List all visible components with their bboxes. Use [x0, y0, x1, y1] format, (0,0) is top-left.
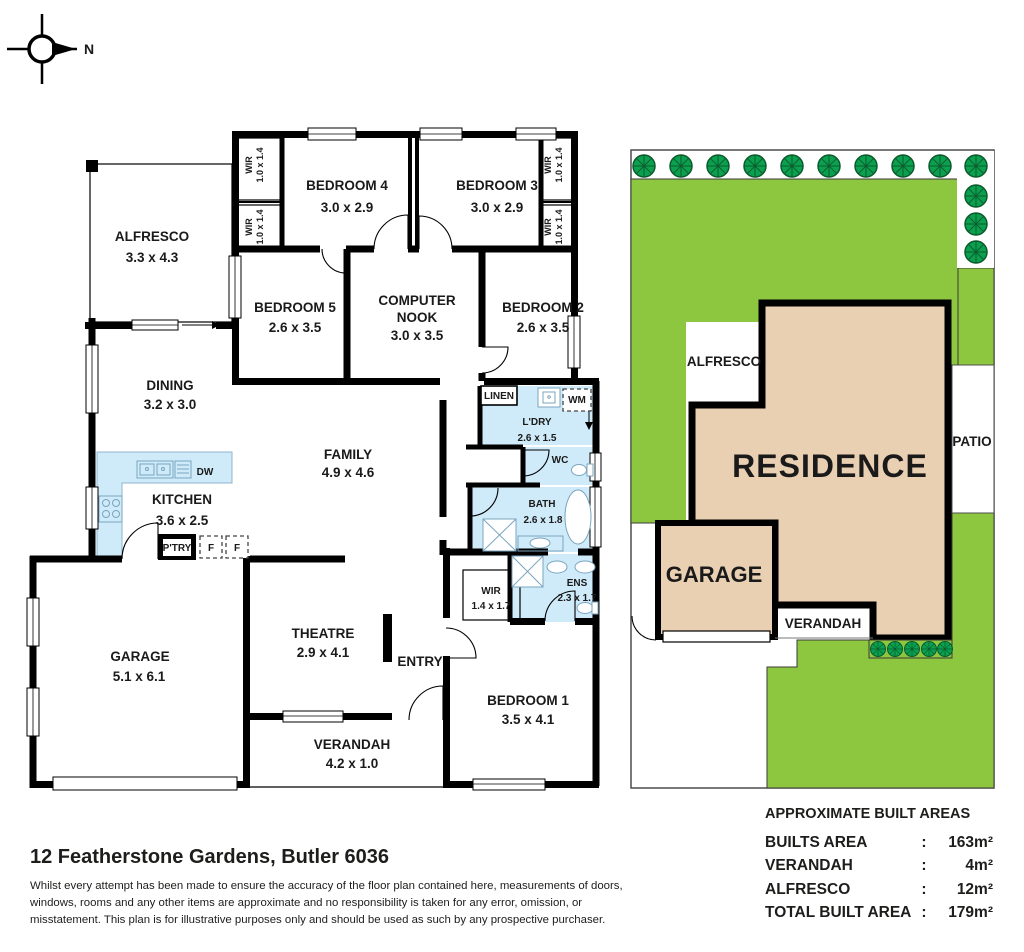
wir-label: WIR 1.0 x 1.4: [543, 147, 564, 182]
tree-icon: [670, 155, 692, 177]
label-fridge: F: [234, 543, 240, 554]
svg-text:NOOK: NOOK: [397, 310, 438, 325]
area-value: 163m²: [931, 834, 993, 852]
site-label-verandah: VERANDAH: [785, 616, 862, 631]
built-areas-row: TOTAL BUILT AREA : 179m²: [765, 902, 993, 926]
label-wm: WM: [568, 395, 586, 406]
svg-text:WIR: WIR: [244, 156, 254, 174]
room-label-theatre: THEATRE: [292, 626, 355, 641]
room-label-bedroom3: BEDROOM 3: [456, 178, 538, 193]
site-label-garage: GARAGE: [666, 562, 763, 587]
svg-text:WIR: WIR: [543, 156, 553, 174]
svg-text:2.3 x 1.7: 2.3 x 1.7: [558, 593, 597, 604]
area-label: VERANDAH: [765, 857, 917, 875]
tree-icon: [818, 155, 840, 177]
built-areas-row: ALFRESCO : 12m²: [765, 878, 993, 902]
room-label-family: FAMILY: [324, 447, 372, 462]
svg-text:3.2 x 3.0: 3.2 x 3.0: [144, 397, 197, 412]
compass-n-label: N: [84, 41, 94, 57]
tree-icon: [633, 155, 655, 177]
room-label-entry: ENTRY: [397, 654, 442, 669]
svg-text:1.0 x 1.4: 1.0 x 1.4: [554, 209, 564, 244]
svg-text:2.6 x 1.5: 2.6 x 1.5: [518, 433, 557, 444]
room-label-bedroom4: BEDROOM 4: [306, 178, 388, 193]
tree-icon: [707, 155, 729, 177]
room-label-laundry: L'DRY: [522, 417, 552, 428]
room-label-wir-main: WIR: [481, 586, 501, 597]
area-label: BUILTS AREA: [765, 834, 917, 852]
lawn-right-strip: [958, 268, 994, 365]
svg-text:WIR: WIR: [543, 218, 553, 236]
room-label-bedroom5: BEDROOM 5: [254, 300, 336, 315]
entry-wall-stub: [383, 614, 392, 662]
compass-north-icon: N: [7, 14, 94, 84]
room-label-garage: GARAGE: [110, 649, 169, 664]
room-label-kitchen: KITCHEN: [152, 492, 212, 507]
site-label-residence: RESIDENCE: [732, 448, 928, 484]
svg-text:4.2 x 1.0: 4.2 x 1.0: [326, 756, 379, 771]
room-label-alfresco: ALFRESCO: [115, 229, 189, 244]
area-value: 12m²: [931, 881, 993, 899]
label-pantry: P'TRY: [163, 543, 192, 554]
site-door-arc: [632, 616, 656, 640]
disclaimer-text: Whilst every attempt has been made to en…: [30, 878, 630, 929]
label-dw: DW: [197, 467, 214, 478]
svg-text:3.0 x 3.5: 3.0 x 3.5: [391, 328, 444, 343]
site-garage-door: [663, 631, 770, 642]
svg-text:1.0 x 1.4: 1.0 x 1.4: [255, 147, 265, 182]
label-fridge: F: [208, 543, 214, 554]
wir-label: WIR 1.0 x 1.4: [543, 209, 564, 244]
built-areas-row: BUILTS AREA : 163m²: [765, 831, 993, 855]
tree-icon: [938, 642, 953, 657]
built-areas-table: APPROXIMATE BUILT AREAS BUILTS AREA : 16…: [765, 806, 993, 925]
shower-icon: [512, 556, 543, 587]
tree-icon: [922, 642, 937, 657]
svg-text:2.6 x 1.8: 2.6 x 1.8: [524, 515, 563, 526]
floor-plan: ALFRESCO 3.3 x 4.3 BEDROOM 4 3.0 x 2.9 B…: [27, 128, 601, 790]
built-areas-title: APPROXIMATE BUILT AREAS: [765, 806, 993, 822]
garage-door: [53, 777, 237, 790]
area-label: TOTAL BUILT AREA: [765, 904, 917, 922]
svg-text:5.1 x 6.1: 5.1 x 6.1: [113, 669, 166, 684]
svg-text:3.6 x 2.5: 3.6 x 2.5: [156, 513, 209, 528]
tree-icon: [744, 155, 766, 177]
svg-text:3.5 x 4.1: 3.5 x 4.1: [502, 712, 555, 727]
tree-icon: [965, 213, 987, 235]
area-value: 179m²: [931, 904, 993, 922]
svg-text:3.0 x 2.9: 3.0 x 2.9: [471, 200, 524, 215]
site-label-alfresco: ALFRESCO: [687, 354, 761, 369]
tree-icon: [929, 155, 951, 177]
room-label-bedroom1: BEDROOM 1: [487, 693, 569, 708]
room-label-wc: WC: [552, 455, 569, 466]
alfresco-post: [86, 160, 98, 172]
svg-text:2.6 x 3.5: 2.6 x 3.5: [517, 320, 570, 335]
svg-text:1.0 x 1.4: 1.0 x 1.4: [554, 147, 564, 182]
hedge-trees: [871, 642, 953, 657]
tree-icon: [781, 155, 803, 177]
room-label-dining: DINING: [146, 378, 193, 393]
basin-icon: [547, 561, 567, 573]
label-linen: LINEN: [484, 391, 514, 402]
svg-text:3.0 x 2.9: 3.0 x 2.9: [321, 200, 374, 215]
tree-icon: [965, 185, 987, 207]
tree-icon: [965, 155, 987, 177]
room-label-verandah: VERANDAH: [314, 737, 391, 752]
laundry-trough-icon: [538, 388, 560, 407]
svg-text:1.0 x 1.4: 1.0 x 1.4: [255, 209, 265, 244]
wir-label: WIR 1.0 x 1.4: [244, 209, 265, 244]
toilet-icon: [572, 464, 594, 476]
area-label: ALFRESCO: [765, 881, 917, 899]
tree-icon: [965, 241, 987, 263]
built-areas-row: VERANDAH : 4m²: [765, 855, 993, 879]
tree-column-right: [965, 185, 987, 263]
site-plan: RESIDENCE GARAGE ALFRESCO VERANDAH PATIO: [631, 150, 994, 788]
site-label-patio: PATIO: [952, 434, 991, 449]
tree-icon: [892, 155, 914, 177]
tree-row-top: [633, 155, 987, 177]
svg-text:2.9 x 4.1: 2.9 x 4.1: [297, 645, 350, 660]
svg-text:4.9 x 4.6: 4.9 x 4.6: [322, 465, 375, 480]
room-label-bedroom2: BEDROOM 2: [502, 300, 584, 315]
basin-icon: [575, 561, 595, 573]
room-label-computer-nook: COMPUTER: [378, 293, 456, 308]
tree-icon: [888, 642, 903, 657]
property-address: 12 Featherstone Gardens, Butler 6036: [30, 846, 389, 869]
tree-icon: [871, 642, 886, 657]
shower-icon: [483, 519, 516, 551]
tree-icon: [905, 642, 920, 657]
svg-text:2.6 x 3.5: 2.6 x 3.5: [269, 320, 322, 335]
room-label-bath: BATH: [528, 499, 555, 510]
room-label-ens: ENS: [567, 578, 588, 589]
area-value: 4m²: [931, 857, 993, 875]
svg-text:1.4 x 1.7: 1.4 x 1.7: [472, 601, 511, 612]
floorplan-page: N: [0, 0, 1024, 952]
bathtub-icon: [565, 490, 591, 544]
bed-divider-wall: [410, 134, 417, 249]
svg-text:WIR: WIR: [244, 218, 254, 236]
svg-text:3.3 x 4.3: 3.3 x 4.3: [126, 250, 179, 265]
tree-icon: [855, 155, 877, 177]
wir-label: WIR 1.0 x 1.4: [244, 147, 265, 182]
